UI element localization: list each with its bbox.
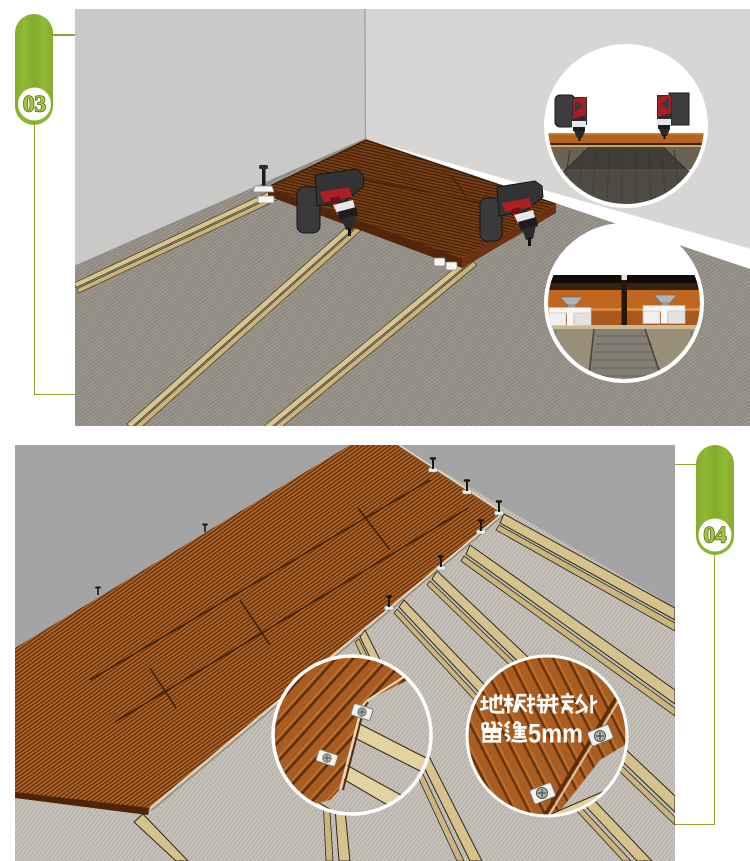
svg-text:04: 04 (704, 523, 728, 548)
svg-text:5mm: 5mm (528, 719, 583, 749)
svg-text:03: 03 (23, 92, 46, 117)
